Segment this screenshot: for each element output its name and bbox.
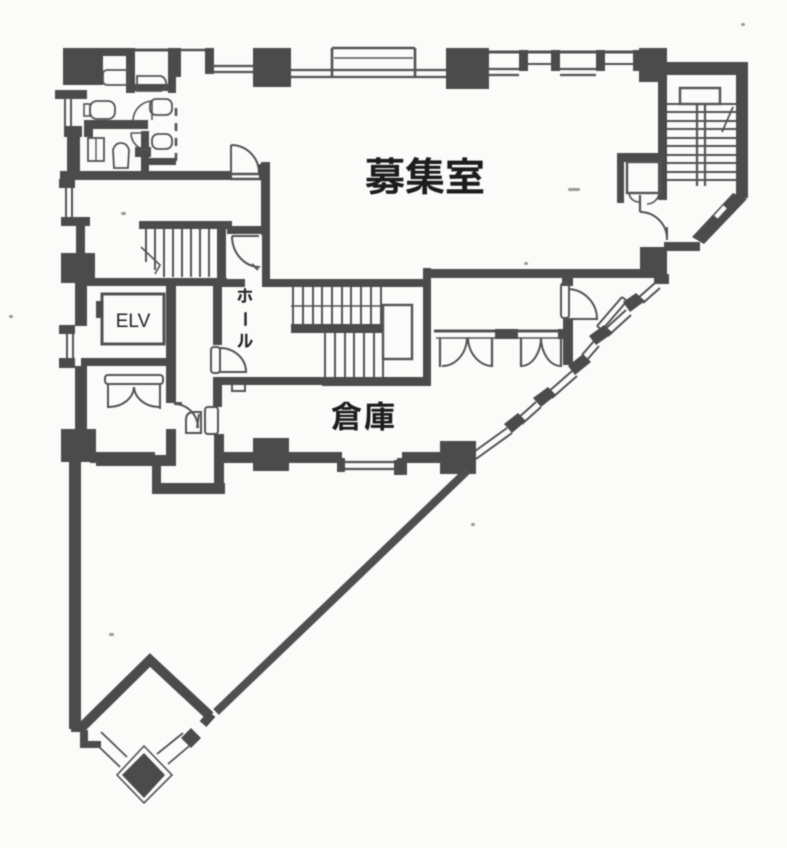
svg-text:ELV: ELV — [116, 311, 151, 332]
